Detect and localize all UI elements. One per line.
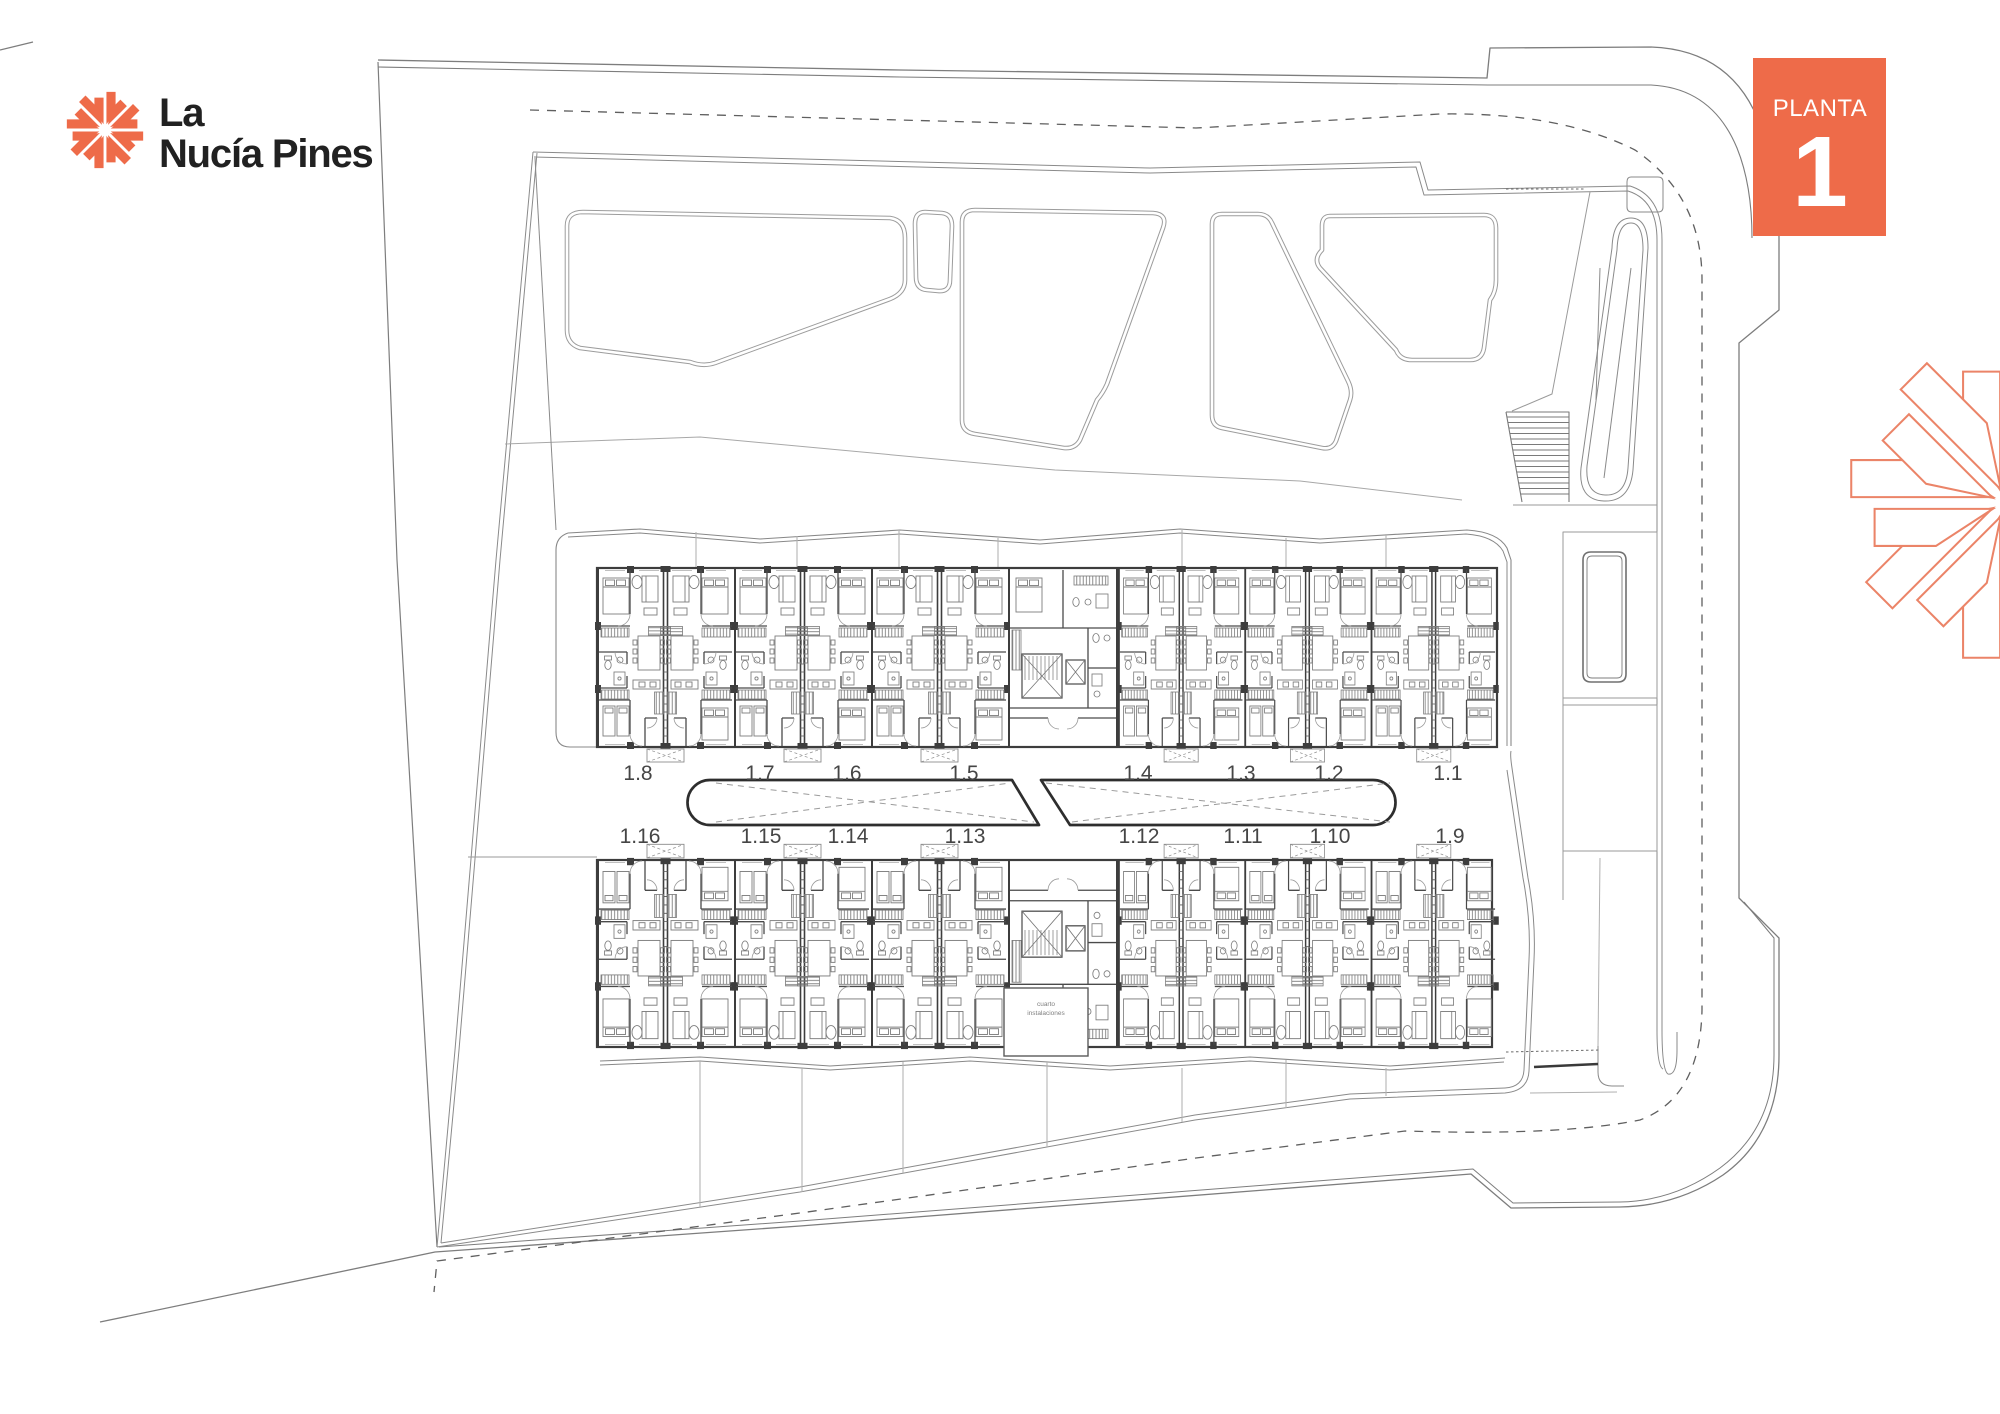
svg-text:1.4: 1.4 (1123, 762, 1153, 785)
svg-text:1.3: 1.3 (1226, 762, 1255, 785)
svg-text:La: La (159, 91, 205, 135)
svg-text:1.2: 1.2 (1314, 762, 1343, 785)
svg-text:1.16: 1.16 (620, 825, 661, 848)
svg-text:1: 1 (1792, 116, 1848, 228)
svg-text:1.9: 1.9 (1435, 825, 1464, 848)
svg-text:1.13: 1.13 (945, 825, 986, 848)
svg-text:1.5: 1.5 (949, 762, 978, 785)
svg-text:1.8: 1.8 (623, 762, 652, 785)
svg-text:1.14: 1.14 (828, 825, 869, 848)
svg-text:1.15: 1.15 (741, 825, 782, 848)
svg-text:1.11: 1.11 (1223, 825, 1262, 848)
svg-text:Nucía Pines: Nucía Pines (159, 132, 373, 176)
svg-text:instalaciones: instalaciones (1027, 1010, 1065, 1017)
svg-text:1.10: 1.10 (1310, 825, 1351, 848)
svg-text:cuarto: cuarto (1037, 1001, 1055, 1008)
svg-text:1.7: 1.7 (745, 762, 774, 785)
svg-text:1.12: 1.12 (1119, 825, 1160, 848)
svg-text:1.6: 1.6 (832, 762, 861, 785)
svg-text:1.1: 1.1 (1433, 762, 1462, 785)
